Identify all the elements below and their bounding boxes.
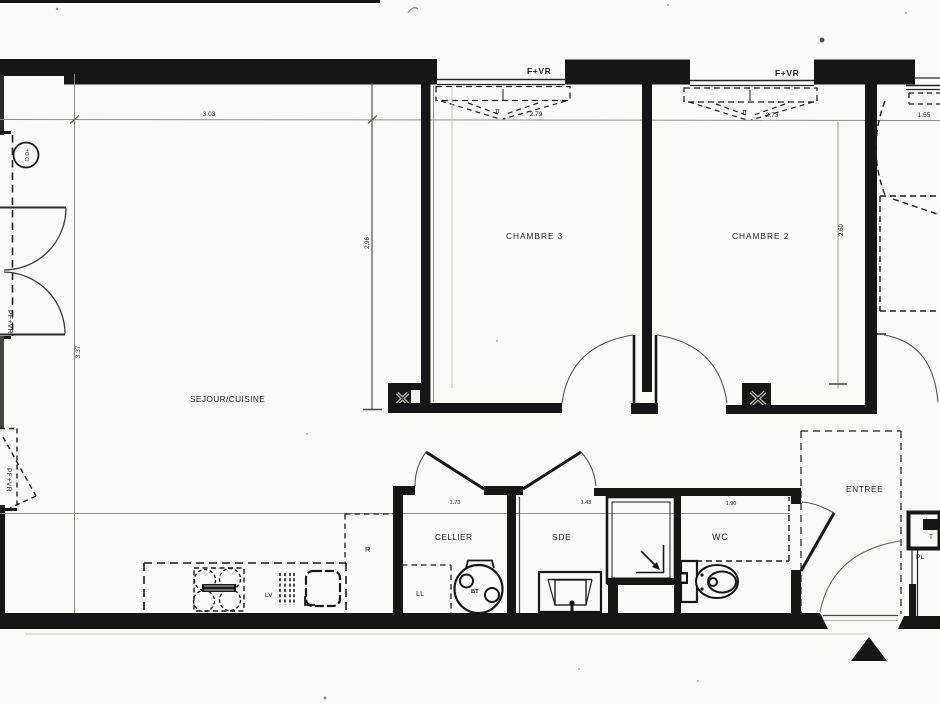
svg-text:1.43: 1.43 bbox=[581, 500, 592, 506]
svg-text:1.55: 1.55 bbox=[918, 112, 931, 119]
svg-text:SEJOUR/CUISINE: SEJOUR/CUISINE bbox=[190, 394, 265, 404]
svg-text:R: R bbox=[365, 545, 371, 554]
svg-text:3.37: 3.37 bbox=[75, 345, 82, 358]
svg-text:O.D+: O.D+ bbox=[25, 149, 31, 162]
svg-text:WC: WC bbox=[712, 532, 729, 542]
svg-text:PF+VR: PF+VR bbox=[6, 310, 13, 334]
svg-text:ENTREE: ENTREE bbox=[846, 484, 883, 494]
svg-text:2.60: 2.60 bbox=[839, 224, 845, 236]
svg-text:LV: LV bbox=[265, 592, 273, 599]
svg-text:LL: LL bbox=[416, 589, 424, 598]
svg-text:CELLIER: CELLIER bbox=[435, 532, 472, 542]
svg-text:F+VR: F+VR bbox=[775, 68, 799, 78]
svg-text:3.03: 3.03 bbox=[203, 111, 216, 118]
svg-text:π: π bbox=[742, 109, 747, 116]
svg-text:1.73: 1.73 bbox=[450, 500, 461, 506]
svg-text:SDE: SDE bbox=[552, 532, 571, 542]
svg-text:PF+VR: PF+VR bbox=[5, 468, 12, 492]
svg-text:T: T bbox=[929, 534, 933, 541]
svg-text:F+VR: F+VR bbox=[527, 66, 551, 76]
svg-text:2.79: 2.79 bbox=[530, 111, 543, 118]
svg-text:2.73: 2.73 bbox=[766, 112, 779, 119]
svg-text:BT: BT bbox=[471, 589, 479, 595]
svg-text:π: π bbox=[495, 108, 500, 115]
svg-text:CHAMBRE 2: CHAMBRE 2 bbox=[732, 231, 789, 241]
svg-text:1.90: 1.90 bbox=[726, 501, 737, 507]
svg-text:CHAMBRE 3: CHAMBRE 3 bbox=[506, 231, 563, 241]
svg-text:2.96: 2.96 bbox=[365, 237, 371, 249]
